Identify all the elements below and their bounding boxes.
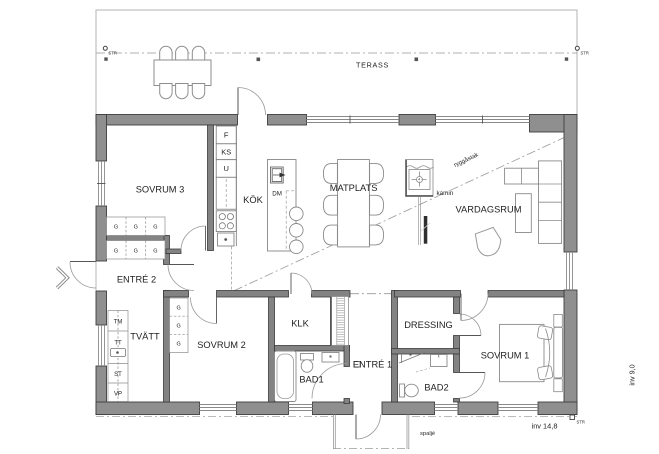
svg-text:SOVRUM 2: SOVRUM 2 xyxy=(197,340,246,350)
svg-text:MATPLATS: MATPLATS xyxy=(330,183,378,193)
svg-text:ENTRÉ 2: ENTRÉ 2 xyxy=(117,275,156,285)
svg-text:VARDAGSRUM: VARDAGSRUM xyxy=(456,205,522,215)
svg-text:TERASS: TERASS xyxy=(356,61,389,70)
svg-text:F: F xyxy=(224,131,229,140)
svg-text:inv 9,0: inv 9,0 xyxy=(628,364,637,385)
svg-text:STR: STR xyxy=(109,51,117,56)
svg-text:G: G xyxy=(177,342,181,348)
svg-text:STR: STR xyxy=(577,420,585,425)
svg-text:ENTRÉ 1: ENTRÉ 1 xyxy=(353,360,392,370)
svg-text:G: G xyxy=(134,225,138,231)
svg-text:inv 14,8: inv 14,8 xyxy=(532,422,558,431)
svg-text:G: G xyxy=(153,225,157,231)
svg-text:G: G xyxy=(134,249,138,255)
svg-text:kamin: kamin xyxy=(437,190,454,197)
svg-text:spaljé: spaljé xyxy=(420,431,435,437)
svg-text:DM: DM xyxy=(272,191,282,198)
svg-text:KÖK: KÖK xyxy=(243,195,263,205)
svg-text:BAD2: BAD2 xyxy=(424,383,448,393)
svg-text:KLK: KLK xyxy=(291,319,309,329)
svg-text:G: G xyxy=(114,249,118,255)
svg-text:SOVRUM 1: SOVRUM 1 xyxy=(481,351,530,361)
svg-text:BAD1: BAD1 xyxy=(299,375,323,385)
svg-text:TT: TT xyxy=(114,341,122,347)
svg-text:STR: STR xyxy=(581,51,589,56)
svg-text:G: G xyxy=(114,225,118,231)
svg-text:TM: TM xyxy=(114,320,123,326)
svg-text:VP: VP xyxy=(114,392,122,398)
svg-text:G: G xyxy=(177,324,181,330)
svg-text:U: U xyxy=(223,164,228,173)
svg-text:G: G xyxy=(153,249,157,255)
svg-text:KS: KS xyxy=(221,148,231,157)
svg-text:G: G xyxy=(177,306,181,312)
svg-text:ST: ST xyxy=(114,372,122,378)
svg-text:DRESSING: DRESSING xyxy=(404,320,453,330)
svg-text:TVÄTT: TVÄTT xyxy=(130,332,160,342)
svg-text:SOVRUM 3: SOVRUM 3 xyxy=(136,185,185,195)
